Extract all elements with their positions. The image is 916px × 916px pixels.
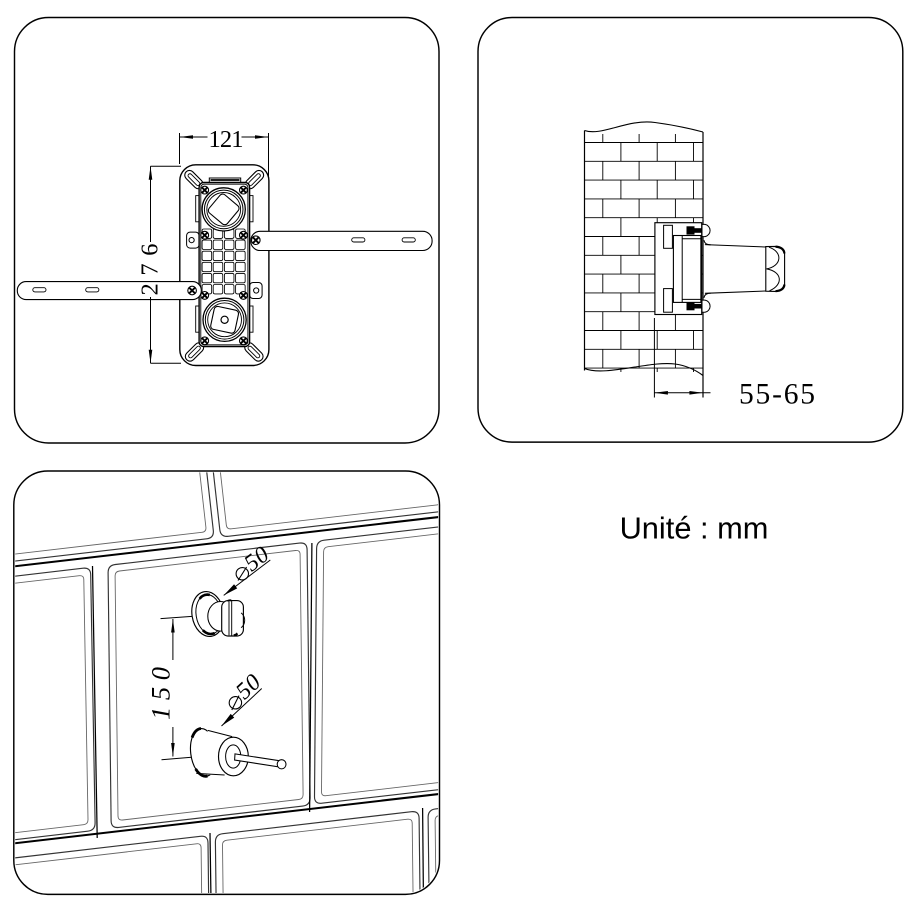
svg-text:276: 276: [137, 244, 164, 296]
svg-text:150: 150: [146, 667, 176, 720]
svg-text:Unité : mm: Unité : mm: [620, 511, 769, 546]
svg-text:55-65: 55-65: [739, 379, 815, 411]
svg-text:121: 121: [209, 126, 244, 153]
